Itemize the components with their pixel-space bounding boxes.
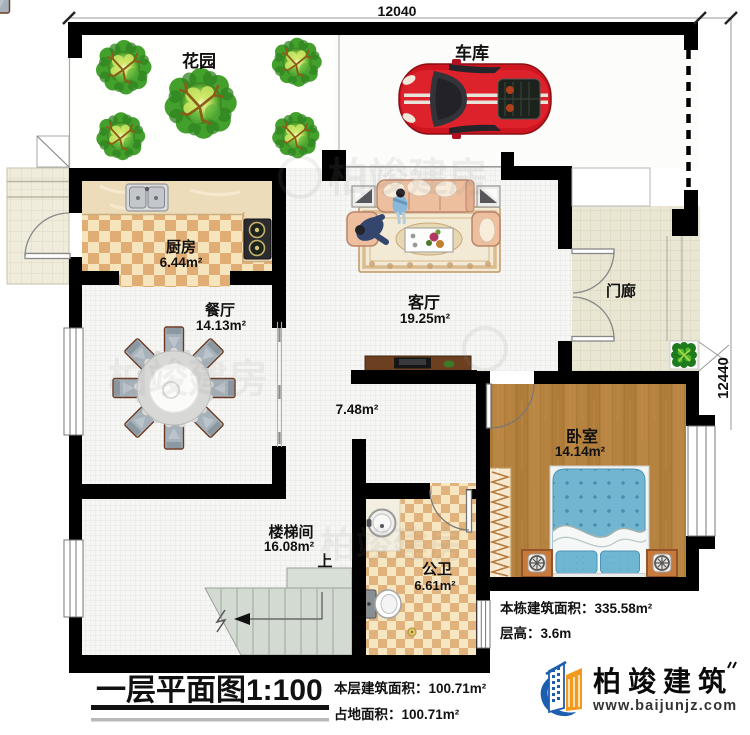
svg-text:12040: 12040 — [378, 3, 417, 19]
svg-text:本栋建筑面积：335.58m²: 本栋建筑面积：335.58m² — [500, 600, 653, 616]
svg-text:餐厅: 餐厅 — [205, 301, 235, 319]
svg-text:19.25m²: 19.25m² — [400, 311, 451, 326]
svg-text:柏竣建房: 柏竣建房 — [328, 156, 488, 200]
svg-text:车库: 车库 — [455, 43, 489, 63]
svg-text:14.13m²: 14.13m² — [196, 318, 247, 333]
svg-text:16.08m²: 16.08m² — [264, 539, 315, 554]
svg-text:门廊: 门廊 — [606, 282, 636, 300]
svg-text:客厅: 客厅 — [408, 293, 440, 312]
svg-text:6.61m²: 6.61m² — [414, 578, 456, 593]
svg-text:本层建筑面积：100.71m²: 本层建筑面积：100.71m² — [334, 680, 487, 696]
svg-text:层高：3.6m: 层高：3.6m — [500, 625, 571, 641]
svg-text:www.baijunjz.com: www.baijunjz.com — [592, 698, 737, 714]
svg-text:14.14m²: 14.14m² — [555, 444, 606, 459]
svg-text:6.44m²: 6.44m² — [160, 255, 203, 270]
svg-text:12440: 12440 — [715, 357, 732, 399]
svg-text:厨房: 厨房 — [166, 238, 196, 256]
svg-text:花园: 花园 — [182, 51, 216, 71]
svg-text:7.48m²: 7.48m² — [336, 402, 379, 417]
svg-text:占地面积：100.71m²: 占地面积：100.71m² — [334, 706, 460, 722]
svg-text:一层平面图1:100: 一层平面图1:100 — [96, 674, 323, 707]
svg-text:柏竣建房: 柏竣建房 — [320, 524, 464, 565]
svg-text:柏竣建房: 柏竣建房 — [108, 357, 268, 401]
svg-text:柏竣建筑: 柏竣建筑 — [593, 665, 733, 697]
